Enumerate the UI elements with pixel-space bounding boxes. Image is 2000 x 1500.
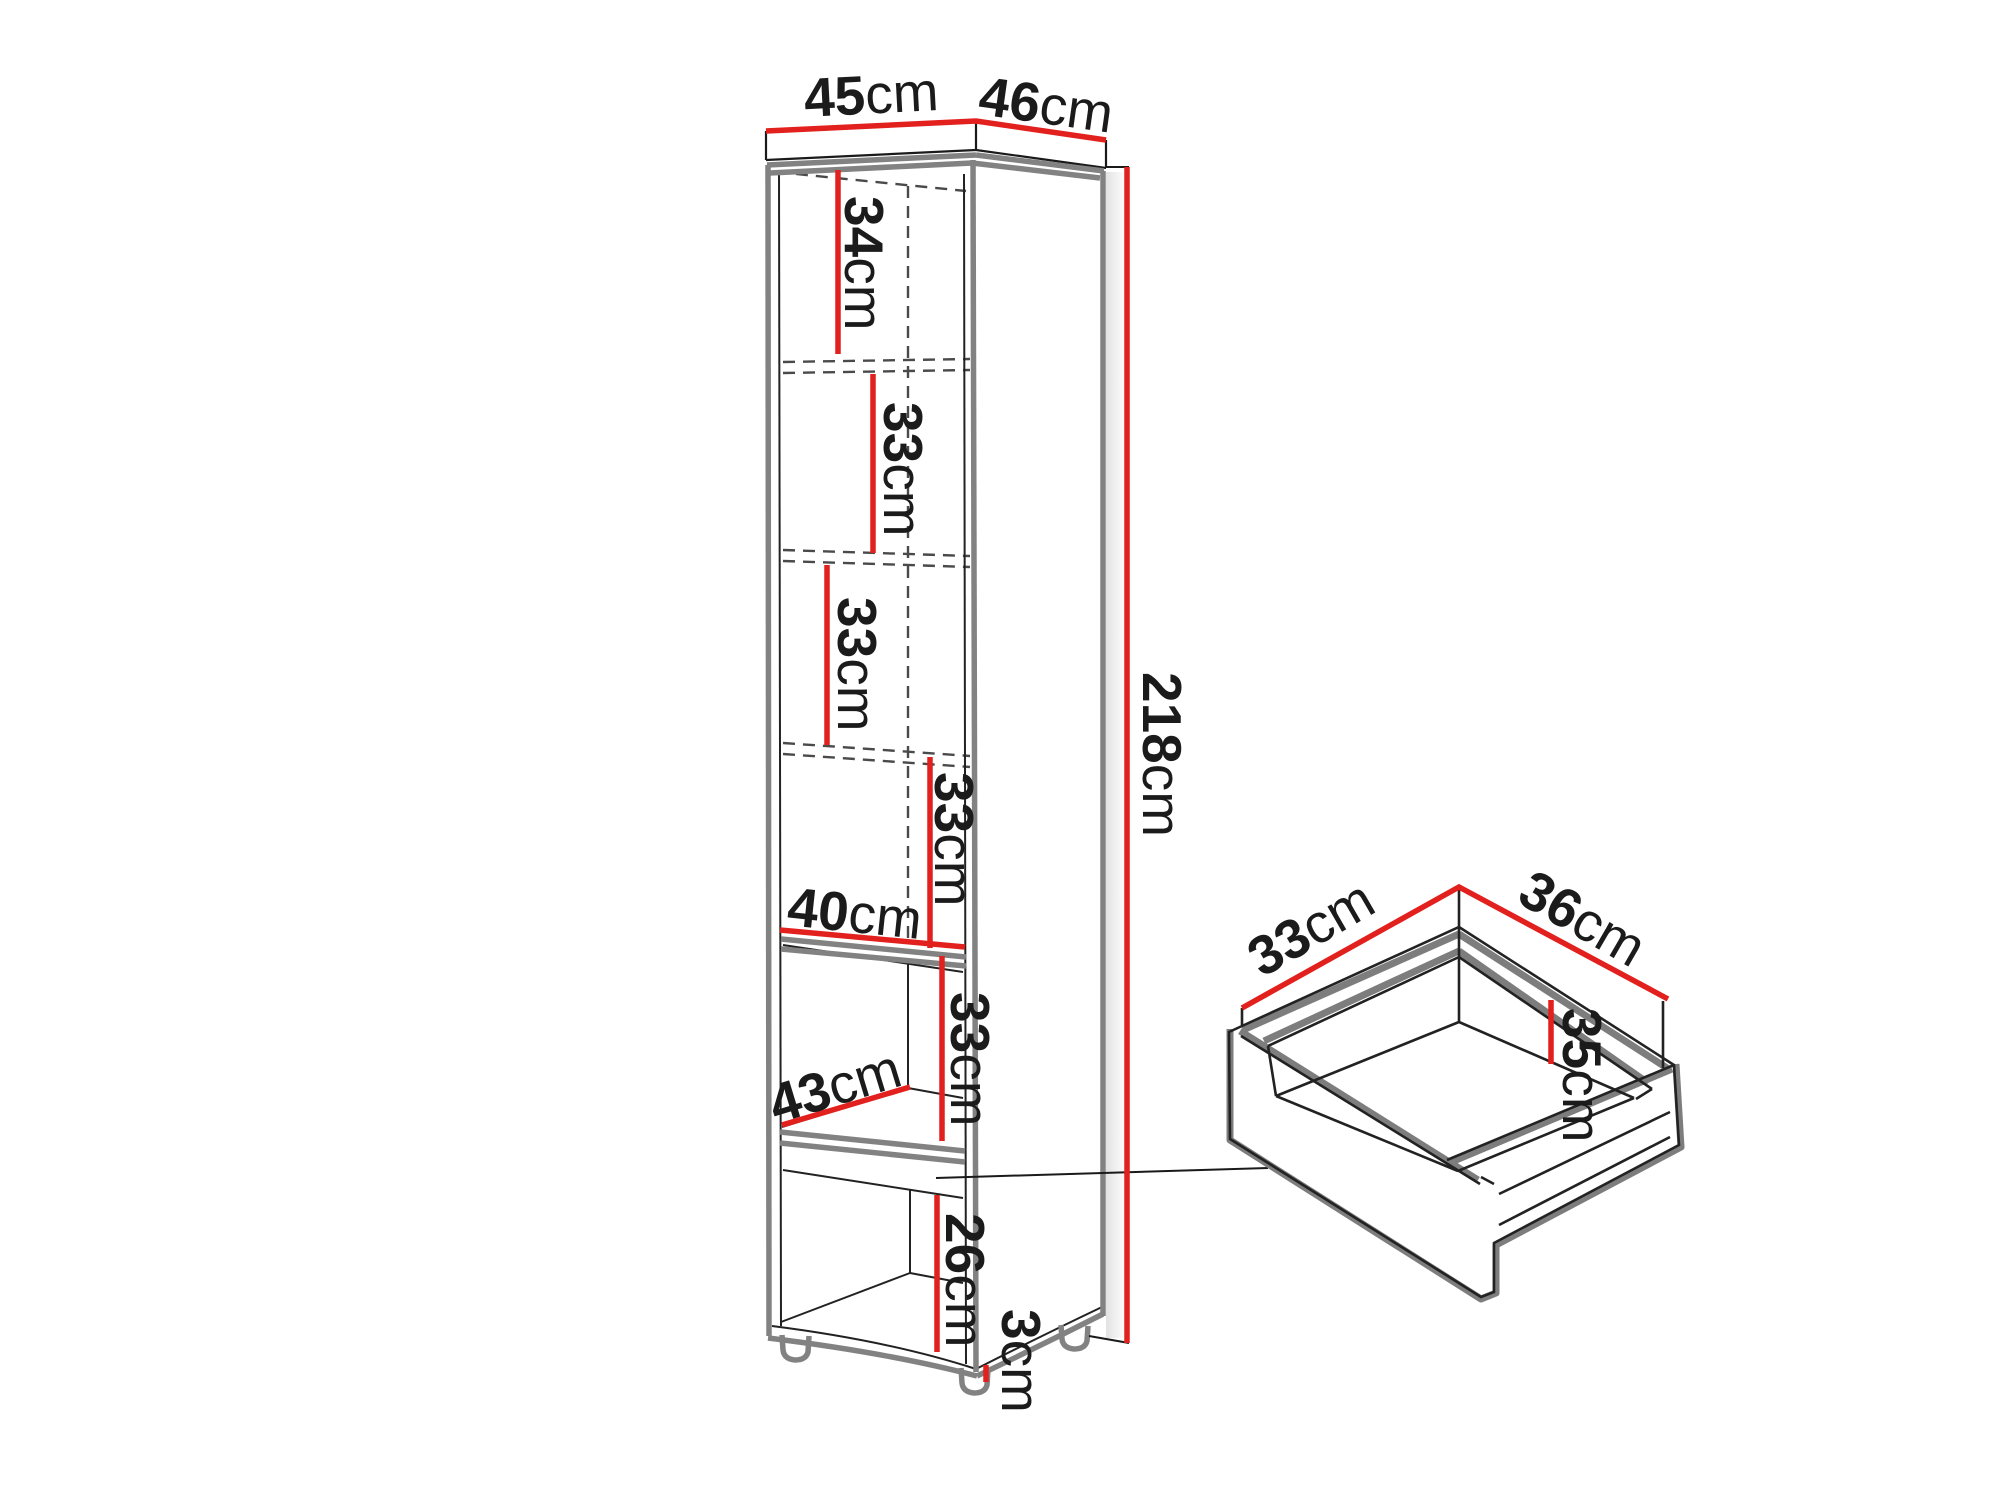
svg-text:45cm: 45cm — [802, 60, 940, 129]
svg-text:35cm: 35cm — [1551, 1008, 1613, 1143]
svg-text:34cm: 34cm — [833, 196, 895, 331]
svg-text:26cm: 26cm — [934, 1213, 996, 1348]
svg-text:33cm: 33cm — [872, 402, 934, 537]
svg-text:33cm: 33cm — [826, 597, 888, 732]
svg-text:218cm: 218cm — [1131, 672, 1193, 837]
svg-text:3cm: 3cm — [990, 1309, 1052, 1413]
svg-text:33cm: 33cm — [939, 992, 1001, 1127]
svg-text:33cm: 33cm — [923, 772, 985, 907]
